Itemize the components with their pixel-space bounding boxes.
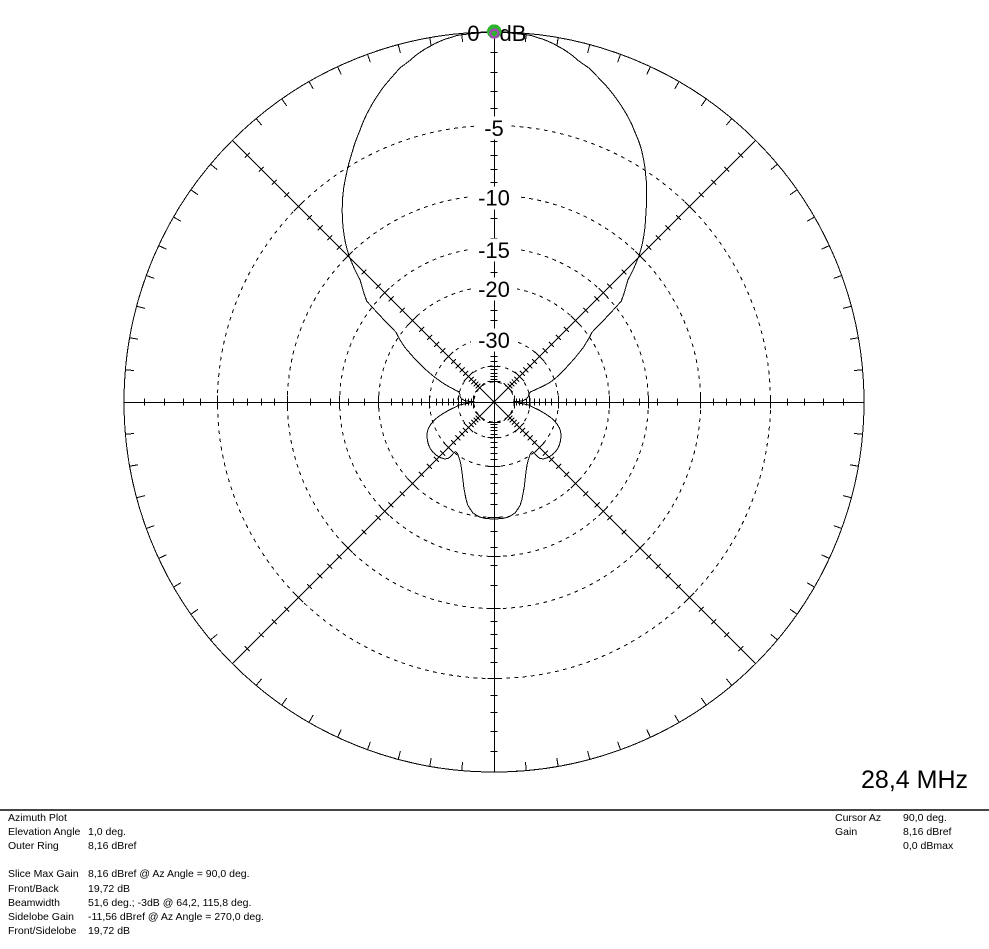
svg-text:0: 0 bbox=[467, 21, 479, 46]
svg-text:-20: -20 bbox=[478, 277, 510, 302]
svg-text:-5: -5 bbox=[484, 116, 504, 141]
svg-text:-10: -10 bbox=[478, 186, 510, 211]
svg-text:-30: -30 bbox=[478, 328, 510, 353]
svg-text:-15: -15 bbox=[478, 238, 510, 263]
svg-text:dB: dB bbox=[500, 21, 527, 46]
